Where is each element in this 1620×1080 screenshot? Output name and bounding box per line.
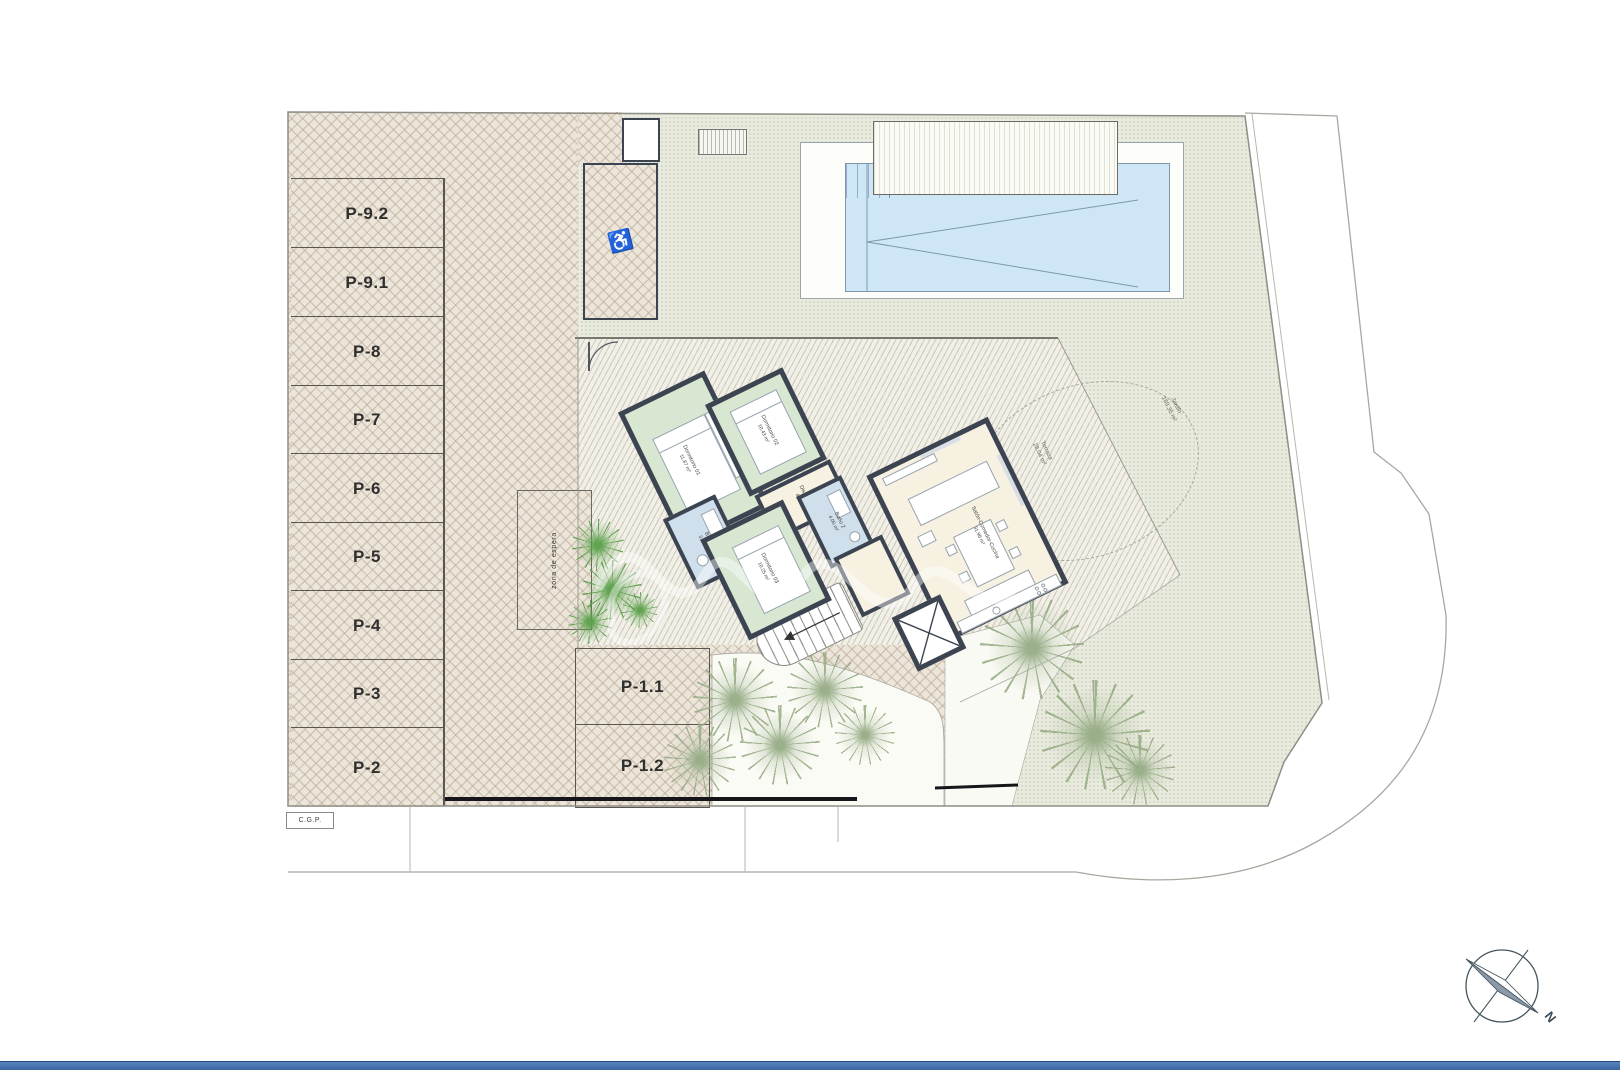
stall-label: P-1.1 <box>621 677 664 697</box>
fern-plant <box>622 592 658 628</box>
bottom-accent-bar <box>0 1061 1620 1070</box>
parking-stall: P-1.1 <box>575 648 710 726</box>
cgp-box: C.G.P. <box>286 812 334 829</box>
parking-stall: P-4 <box>291 590 443 660</box>
stove-burner <box>1036 590 1041 595</box>
parking-stall: P-3 <box>291 659 443 728</box>
stall-label: P-9.2 <box>345 204 388 224</box>
stall-label: P-2 <box>353 758 381 778</box>
stall-label: P-7 <box>353 410 381 430</box>
wheelchair-icon: ♿ <box>605 226 635 256</box>
stall-column-edge <box>443 178 445 806</box>
accessible-parking-stall: ♿ <box>583 163 658 320</box>
vent-grate <box>698 129 747 155</box>
palm-tree <box>1105 735 1175 805</box>
parking-stall: P-2 <box>291 727 443 807</box>
utility-box <box>622 118 660 162</box>
fern-plant <box>568 600 612 644</box>
pool-pergola <box>873 121 1118 195</box>
stall-label: P-3 <box>353 684 381 704</box>
stall-label: P-4 <box>353 616 381 636</box>
site-plan-canvas: P-9.2 P-9.1 P-8 P-7 P-6 P-5 P-4 P-3 P-2 … <box>0 0 1620 1080</box>
stall-label: P-1.2 <box>621 756 664 776</box>
stall-label: P-5 <box>353 547 381 567</box>
parking-stall: P-5 <box>291 522 443 591</box>
sofa <box>908 461 1000 527</box>
parking-stall: P-7 <box>291 385 443 454</box>
waiting-zone-label: zona de espera <box>551 532 558 589</box>
dining-chair <box>995 519 1008 532</box>
palm-tree <box>835 705 895 765</box>
side-table <box>917 530 937 548</box>
stove-burner <box>1043 587 1048 592</box>
parking-stall: P-9.1 <box>291 247 443 317</box>
palm-tree <box>664 724 736 796</box>
parking-stall: P-9.2 <box>291 178 443 248</box>
stall-label: P-6 <box>353 479 381 499</box>
dining-chair <box>1008 546 1021 559</box>
parking-stall: P-6 <box>291 453 443 523</box>
cgp-label: C.G.P. <box>298 817 321 824</box>
stall-label: P-8 <box>353 342 381 362</box>
parking-stall: P-8 <box>291 316 443 386</box>
kitchen-sink <box>991 605 1002 616</box>
stall-label: P-9.1 <box>345 273 388 293</box>
